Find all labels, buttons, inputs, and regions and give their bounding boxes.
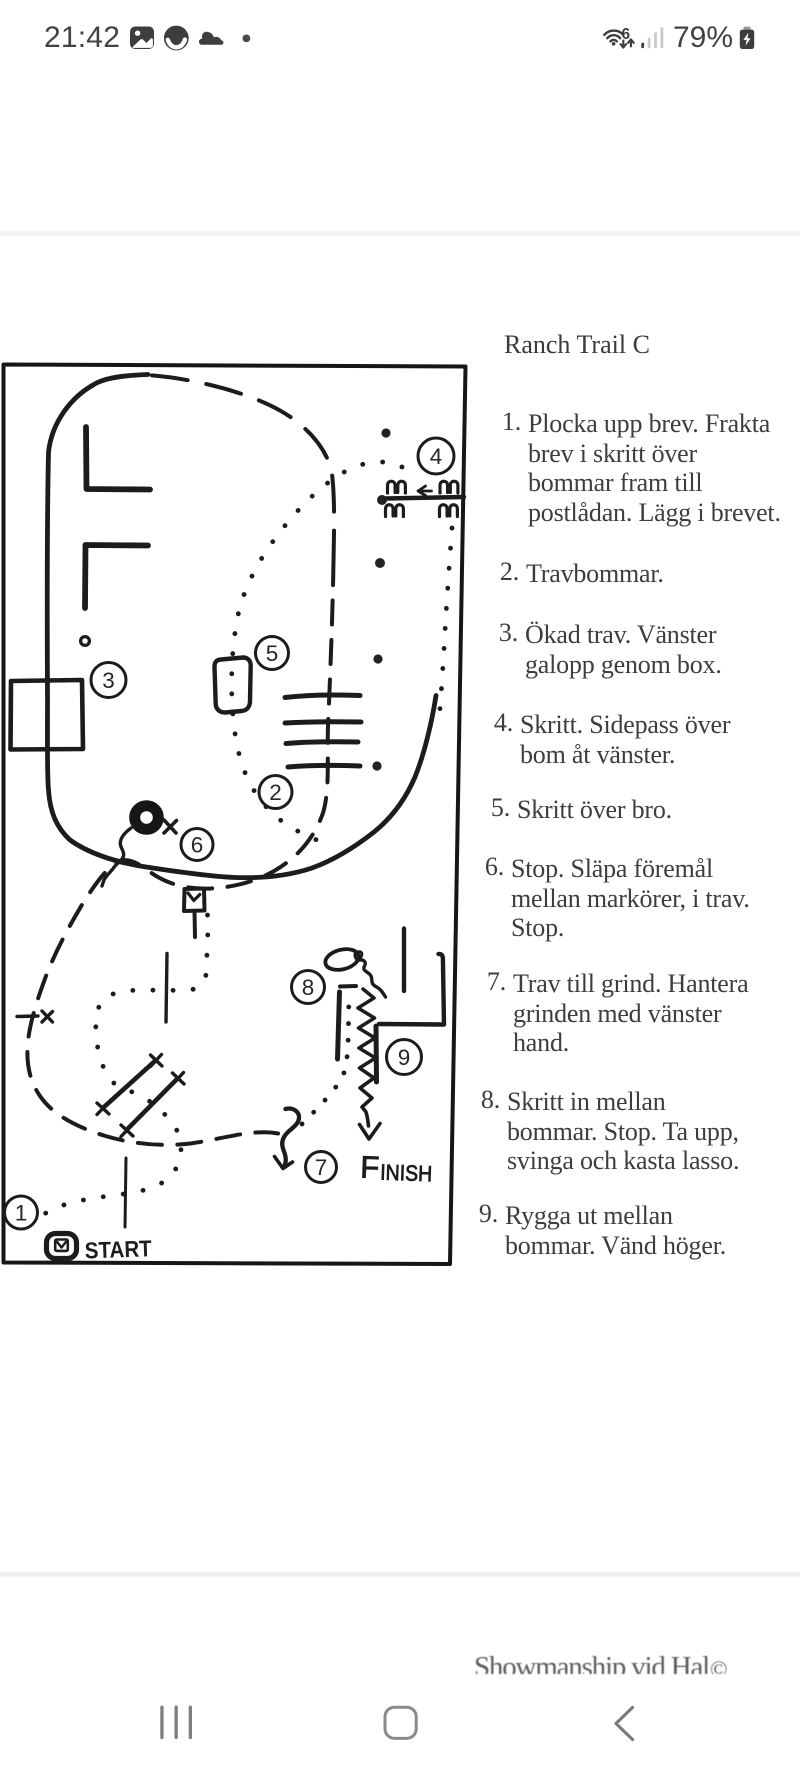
svg-text:INISH: INISH — [380, 1160, 433, 1187]
svg-text:5: 5 — [266, 641, 279, 666]
svg-text:8: 8 — [302, 975, 315, 1000]
svg-text:4: 4 — [430, 444, 443, 469]
svg-text:3: 3 — [102, 668, 115, 693]
svg-text:1: 1 — [15, 1201, 28, 1226]
svg-text:9: 9 — [398, 1045, 411, 1070]
svg-text:6: 6 — [191, 833, 204, 858]
svg-text:2: 2 — [269, 780, 282, 805]
svg-text:F: F — [360, 1150, 380, 1186]
svg-text:START: START — [84, 1235, 152, 1263]
svg-text:7: 7 — [315, 1155, 328, 1180]
